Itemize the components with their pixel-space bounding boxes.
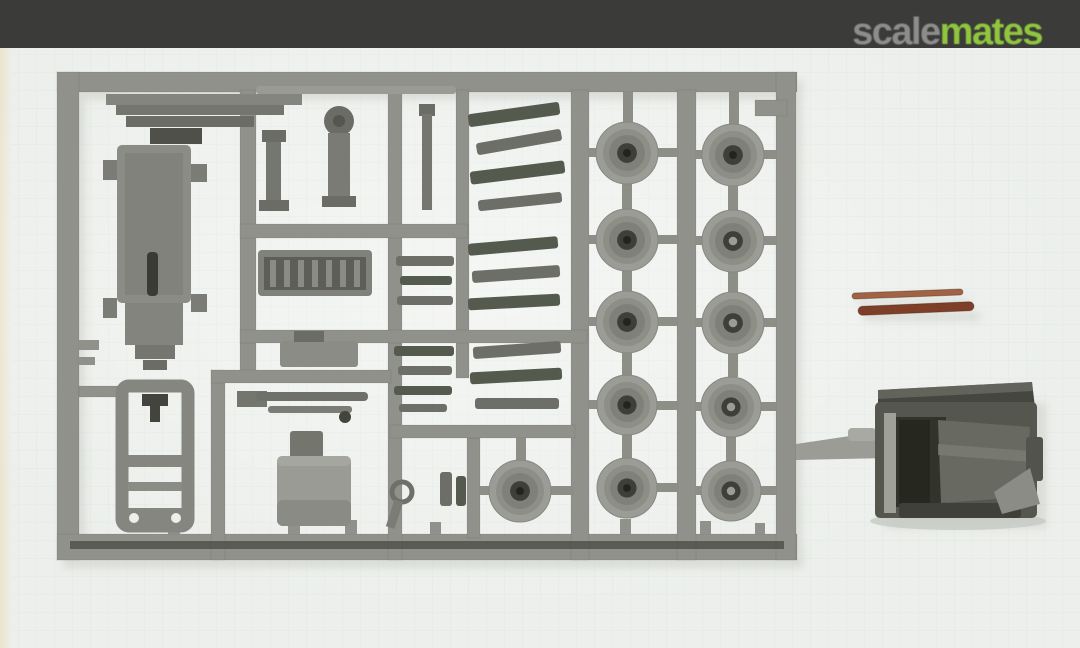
grille-part — [258, 250, 372, 296]
road-wheel-part — [702, 292, 764, 354]
road-wheel-part — [596, 122, 658, 184]
logo-text-mates: mates — [940, 11, 1042, 53]
logo-text-scale: scale — [852, 11, 940, 53]
road-wheel-part — [702, 124, 764, 186]
cab-part — [870, 382, 1046, 530]
road-wheel-part — [597, 375, 657, 435]
road-wheel-part — [597, 458, 657, 518]
road-wheel-part — [596, 209, 658, 271]
scalemates-logo[interactable]: scalemates — [852, 13, 1042, 51]
road-wheel-part — [702, 210, 764, 272]
road-wheel-part — [701, 461, 761, 521]
road-wheel-part — [701, 377, 761, 437]
sprue-photo-svg — [0, 0, 1080, 648]
kit-sprue-photo — [0, 0, 1080, 648]
bottom-rail-groove — [70, 541, 784, 549]
scalemates-photo-page: scalemates — [0, 0, 1080, 648]
plate-part — [280, 341, 358, 367]
road-wheel-part — [596, 291, 658, 353]
road-wheel-part — [489, 460, 551, 522]
